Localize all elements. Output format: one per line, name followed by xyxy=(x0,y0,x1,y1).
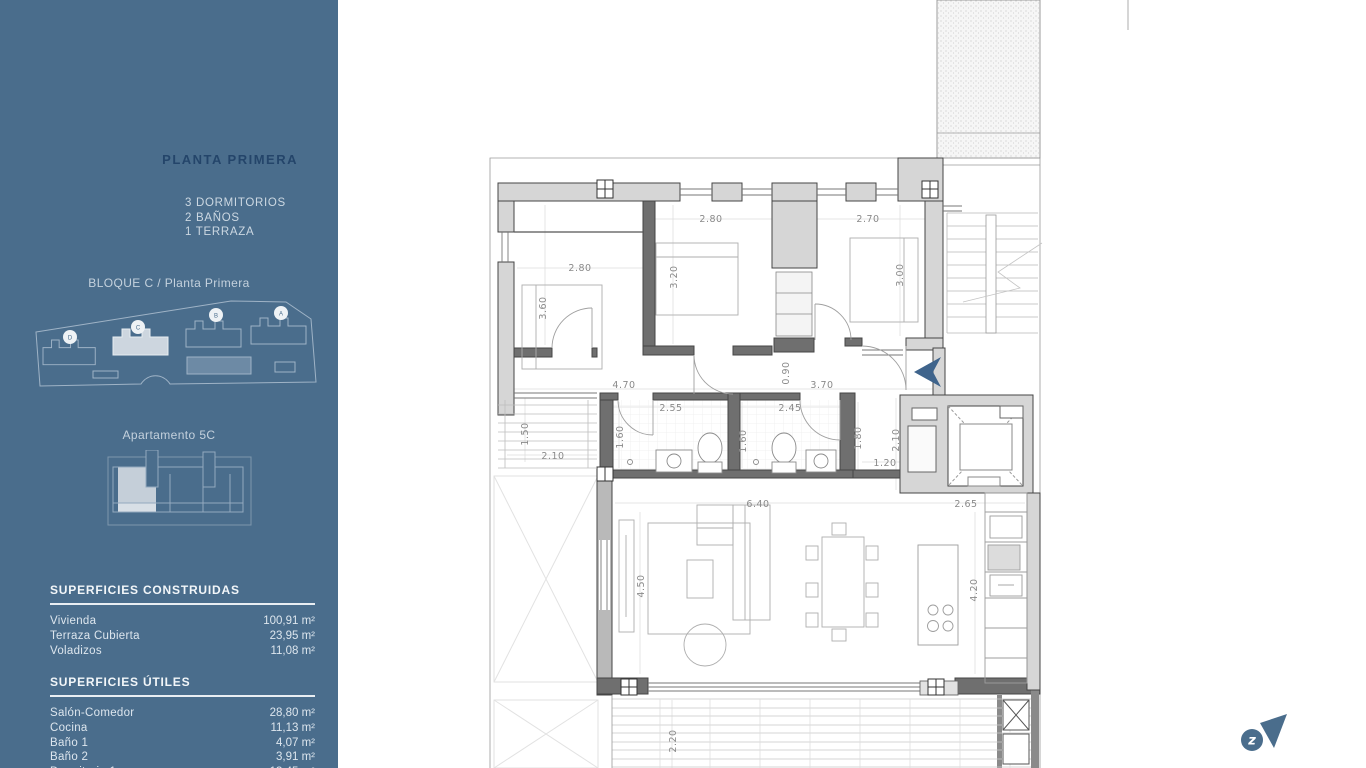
site-pool xyxy=(187,357,251,374)
surface-row-label: Cocina xyxy=(50,721,88,736)
dimension-label: 6.40 xyxy=(746,499,769,510)
stairwell xyxy=(947,213,1042,333)
surface-row-value: 28,80 m² xyxy=(270,706,315,721)
terrace-shafts xyxy=(1003,700,1029,764)
site-block-b xyxy=(186,321,241,347)
surface-row: Baño 23,91 m² xyxy=(50,750,315,765)
dimension-label: 1.80 xyxy=(853,426,864,449)
developer-logo: z xyxy=(1238,710,1302,758)
surface-row-value: 11,08 m² xyxy=(270,644,315,659)
surface-row-value: 100,91 m² xyxy=(263,614,315,629)
dimension-label: 3.20 xyxy=(669,265,680,288)
dimension-label: 2.80 xyxy=(568,263,591,274)
dimension-label: 2.70 xyxy=(856,214,879,225)
site-plan-diagram: D C B A xyxy=(20,296,320,404)
site-block-a xyxy=(251,318,306,344)
apartment-highlight-band xyxy=(118,503,156,512)
dimension-label: 2.45 xyxy=(778,403,801,414)
block-marker-b: B xyxy=(214,314,218,320)
dimension-label: 1.20 xyxy=(873,458,896,469)
divider xyxy=(50,603,315,605)
site-block-markers: D C B A xyxy=(63,306,288,344)
living-furniture xyxy=(619,505,878,666)
dimension-label: 2.10 xyxy=(541,451,564,462)
bedroom-furniture xyxy=(522,238,918,369)
surface-row-label: Terraza Cubierta xyxy=(50,629,140,644)
dimension-label: 1.60 xyxy=(738,429,749,452)
surfaces-built-heading: SUPERFICIES CONSTRUIDAS xyxy=(50,583,315,597)
entry-closet xyxy=(776,272,812,336)
surface-row-value: 11,13 m² xyxy=(270,721,315,736)
dimension-label: 2.10 xyxy=(891,428,902,451)
elevator-core xyxy=(900,395,1033,493)
surface-row-value: 23,95 m² xyxy=(270,629,315,644)
void-areas xyxy=(494,476,598,768)
surfaces-useful-table: Salón-Comedor28,80 m²Cocina11,13 m²Baño … xyxy=(50,706,315,768)
surface-row: Salón-Comedor28,80 m² xyxy=(50,706,315,721)
surfaces-useful-section: SUPERFICIES ÚTILES Salón-Comedor28,80 m²… xyxy=(50,675,315,768)
dimension-label: 1.50 xyxy=(520,422,531,445)
dimension-label: 2.65 xyxy=(954,499,977,510)
block-marker-c: C xyxy=(136,326,141,332)
dimension-label: 2.20 xyxy=(668,729,679,752)
dimension-label: 3.00 xyxy=(895,263,906,286)
dimension-label: 4.50 xyxy=(636,574,647,597)
logo-wing xyxy=(1260,714,1287,748)
block-marker-a: A xyxy=(279,312,283,318)
floor-plan-drawing: 2.803.602.803.202.703.004.700.903.702.55… xyxy=(338,0,1366,768)
apartment-specs: 3 DORMITORIOS 2 BAÑOS 1 TERRAZA xyxy=(185,196,286,240)
dimension-label: 3.70 xyxy=(810,380,833,391)
surface-row: Vivienda100,91 m² xyxy=(50,614,315,629)
dimension-label: 4.70 xyxy=(612,380,635,391)
surfaces-built-table: Vivienda100,91 m²Terraza Cubierta23,95 m… xyxy=(50,614,315,658)
surface-row: Cocina11,13 m² xyxy=(50,721,315,736)
surface-row-value: 4,07 m² xyxy=(276,736,315,751)
info-sidebar: PLANTA PRIMERA 3 DORMITORIOS 2 BAÑOS 1 T… xyxy=(0,0,338,768)
surface-row: Terraza Cubierta23,95 m² xyxy=(50,629,315,644)
surfaces-useful-heading: SUPERFICIES ÚTILES xyxy=(50,675,315,689)
surface-row-value: 3,91 m² xyxy=(276,750,315,765)
spec-terrace: 1 TERRAZA xyxy=(185,225,286,240)
surface-row-label: Baño 2 xyxy=(50,750,88,765)
spec-bedrooms: 3 DORMITORIOS xyxy=(185,196,286,211)
site-annex-2 xyxy=(275,362,295,372)
dimension-label: 2.55 xyxy=(659,403,682,414)
apartment-diagram xyxy=(106,450,256,535)
block-marker-d: D xyxy=(68,336,73,342)
apartment-label: Apartamento 5C xyxy=(28,428,310,442)
page-title: PLANTA PRIMERA xyxy=(162,152,298,167)
block-label: BLOQUE C / Planta Primera xyxy=(28,276,310,290)
surface-row: Baño 14,07 m² xyxy=(50,736,315,751)
dimension-label: 0.90 xyxy=(781,361,792,384)
surface-row-label: Salón-Comedor xyxy=(50,706,134,721)
surface-row: Voladizos11,08 m² xyxy=(50,644,315,659)
logo-letter: z xyxy=(1247,734,1256,749)
floor-plan-area: 2.803.602.803.202.703.004.700.903.702.55… xyxy=(338,0,1366,768)
dimension-label: 2.80 xyxy=(699,214,722,225)
dimension-label: 3.60 xyxy=(538,296,549,319)
divider xyxy=(50,695,315,697)
site-annex-1 xyxy=(93,371,118,378)
dimension-label: 4.20 xyxy=(969,578,980,601)
spec-bathrooms: 2 BAÑOS xyxy=(185,211,286,226)
surfaces-built-section: SUPERFICIES CONSTRUIDAS Vivienda100,91 m… xyxy=(50,583,315,658)
dimension-label: 1.60 xyxy=(615,425,626,448)
surface-row-label: Vivienda xyxy=(50,614,96,629)
surface-row-label: Baño 1 xyxy=(50,736,88,751)
surface-row-label: Voladizos xyxy=(50,644,102,659)
